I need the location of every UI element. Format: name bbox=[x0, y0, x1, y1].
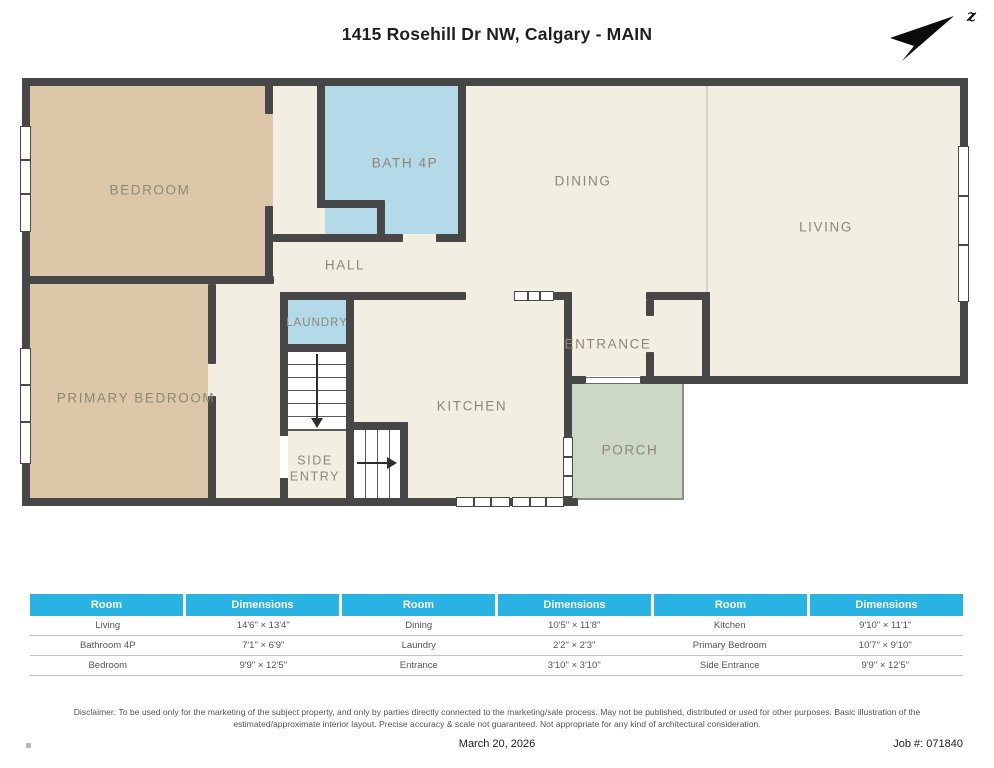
job-number: Job #: 071840 bbox=[893, 738, 963, 750]
side-stairs-arrowhead-icon bbox=[387, 457, 397, 469]
wall-kitchen-top bbox=[280, 292, 466, 300]
living-window bbox=[958, 146, 969, 302]
wall-bedroom-bottom bbox=[22, 276, 274, 284]
table-row: Living 14'6" × 13'4" Dining 10'5" × 11'8… bbox=[30, 616, 963, 636]
stairs-down-arrow bbox=[316, 354, 318, 418]
room-label-side-entry: SIDE ENTRY bbox=[278, 453, 352, 484]
wall-side-stairs-right bbox=[400, 422, 408, 506]
room-name-cell: Living bbox=[30, 616, 186, 635]
room-label-bedroom: BEDROOM bbox=[110, 183, 191, 198]
front-door bbox=[586, 377, 640, 384]
table-header-row: Room Dimensions Room Dimensions Room Dim… bbox=[30, 594, 963, 616]
wall-bedroom-right-top bbox=[265, 78, 273, 114]
room-name-cell: Bedroom bbox=[30, 656, 186, 675]
wall-closet-right bbox=[702, 292, 710, 384]
room-name-cell: Entrance bbox=[341, 656, 497, 675]
room-label-kitchen: KITCHEN bbox=[437, 399, 507, 414]
room-label-porch: PORCH bbox=[602, 443, 659, 458]
wall-bedroom-right-bottom bbox=[265, 206, 273, 284]
table-header: Room bbox=[654, 594, 807, 616]
wall-bath-notch-h bbox=[317, 200, 383, 208]
room-dimensions-cell: 10'7" × 9'10" bbox=[808, 636, 964, 655]
room-bedroom bbox=[30, 86, 273, 276]
room-label-dining: DINING bbox=[555, 174, 612, 189]
wall-closet-left-bottom bbox=[646, 352, 654, 384]
wall-closet-left-top bbox=[646, 300, 654, 316]
room-dimensions-cell: 9'10" × 11'1" bbox=[808, 616, 964, 635]
wall-closet-top bbox=[646, 292, 710, 300]
room-dimensions-cell: 7'1" × 6'9" bbox=[186, 636, 342, 655]
wall-living-bottom bbox=[646, 376, 968, 384]
table-header: Room bbox=[30, 594, 183, 616]
wall-bath-bottom-left bbox=[273, 234, 403, 242]
kitchen-window-1 bbox=[456, 497, 510, 507]
wall-entrance-bottom-left bbox=[564, 376, 586, 384]
dining-living-divider bbox=[706, 86, 708, 292]
wall-bath-left bbox=[317, 78, 325, 208]
side-stairs-arrow bbox=[357, 462, 387, 464]
disclaimer-text: Disclaimer: To be used only for the mark… bbox=[0, 706, 994, 730]
room-dimensions-cell: 10'5" × 11'8" bbox=[497, 616, 653, 635]
kitchen-window-2 bbox=[512, 497, 564, 507]
stairs-down-arrowhead-icon bbox=[311, 418, 323, 428]
room-name-cell: Side Entrance bbox=[652, 656, 808, 675]
table-header: Dimensions bbox=[186, 594, 339, 616]
floor-plan: BEDROOM BATH 4P DINING LIVING HALL LAUND… bbox=[0, 0, 994, 560]
table-header: Dimensions bbox=[498, 594, 651, 616]
room-label-hall: HALL bbox=[325, 258, 365, 273]
wall-laundry-bottom bbox=[280, 344, 352, 352]
room-dimensions-cell: 14'6" × 13'4" bbox=[186, 616, 342, 635]
wall-side-stairs-top bbox=[346, 422, 408, 430]
room-label-laundry: LAUNDRY bbox=[286, 317, 348, 329]
room-label-bath: BATH 4P bbox=[372, 156, 438, 171]
room-name-cell: Kitchen bbox=[652, 616, 808, 635]
porch-window bbox=[563, 437, 573, 497]
bedroom-window bbox=[20, 126, 31, 232]
room-dimensions-cell: 2'2" × 2'3" bbox=[497, 636, 653, 655]
room-name-cell: Laundry bbox=[341, 636, 497, 655]
wall-top bbox=[22, 78, 968, 86]
room-dimensions-cell: 9'9" × 12'5" bbox=[808, 656, 964, 675]
wall-bath-right bbox=[458, 78, 466, 242]
table-row: Bathroom 4P 7'1" × 6'9" Laundry 2'2" × 2… bbox=[30, 636, 963, 656]
table-header: Room bbox=[342, 594, 495, 616]
room-name-cell: Primary Bedroom bbox=[652, 636, 808, 655]
room-label-living: LIVING bbox=[799, 220, 853, 235]
primary-bedroom-window bbox=[20, 348, 31, 464]
room-name-cell: Bathroom 4P bbox=[30, 636, 186, 655]
wall-primary-right-bottom bbox=[208, 396, 216, 506]
room-label-entrance: ENTRANCE bbox=[564, 337, 651, 352]
dimensions-table: Room Dimensions Room Dimensions Room Dim… bbox=[30, 594, 963, 676]
room-label-primary-bedroom: PRIMARY BEDROOM bbox=[57, 391, 216, 406]
room-dimensions-cell: 3'10" × 3'10" bbox=[497, 656, 653, 675]
table-row: Bedroom 9'9" × 12'5" Entrance 3'10" × 3'… bbox=[30, 656, 963, 676]
room-dimensions-cell: 9'9" × 12'5" bbox=[186, 656, 342, 675]
room-name-cell: Dining bbox=[341, 616, 497, 635]
hall-window bbox=[514, 291, 554, 301]
wall-primary-right-top bbox=[208, 284, 216, 364]
table-header: Dimensions bbox=[810, 594, 963, 616]
footer-date: March 20, 2026 bbox=[0, 738, 994, 750]
